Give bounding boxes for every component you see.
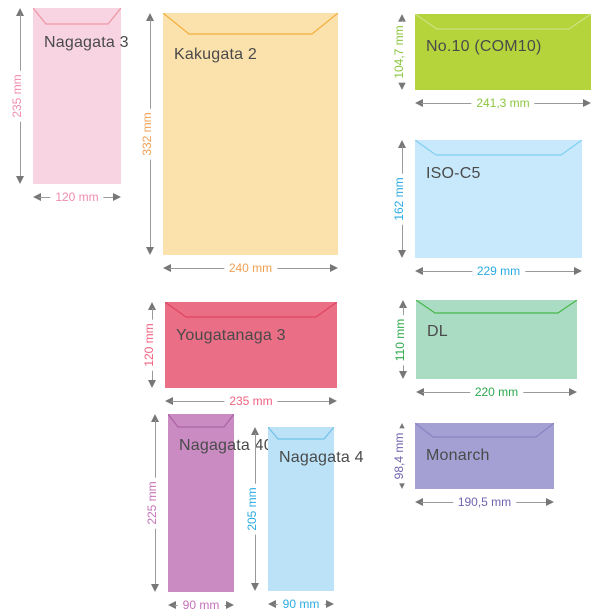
envelope-body: No.10 (COM10) xyxy=(415,14,591,90)
flap-outline xyxy=(168,414,234,427)
envelope-flap-icon xyxy=(168,414,234,429)
height-label: 98,4 mm xyxy=(391,429,407,484)
width-label: 220 mm xyxy=(470,385,523,399)
envelope-flap-icon xyxy=(268,427,334,441)
width-label: 235 mm xyxy=(224,394,277,408)
arrow-right-icon xyxy=(330,264,338,272)
envelope-name: Kakugata 2 xyxy=(174,46,257,64)
envelope-flap-icon xyxy=(163,13,338,36)
envelope-name: Yougatanaga 3 xyxy=(176,327,286,345)
arrow-down-icon xyxy=(399,371,407,379)
height-label: 104,7 mm xyxy=(391,21,407,82)
height-dimension: 120 mm xyxy=(145,302,159,388)
arrow-down-icon xyxy=(148,380,156,388)
width-dimension: 240 mm xyxy=(163,260,338,276)
envelope-name: Nagagata 4 xyxy=(279,449,364,467)
envelope-flap-icon xyxy=(415,140,582,157)
envelope-body: ISO-C5 xyxy=(415,140,582,258)
height-label: 110 mm xyxy=(392,314,408,364)
width-label: 229 mm xyxy=(472,264,525,278)
arrow-down-icon xyxy=(16,176,24,184)
arrow-right-icon xyxy=(226,601,234,609)
arrow-right-icon xyxy=(583,99,591,107)
flap-outline xyxy=(33,8,121,24)
width-dimension: 90 mm xyxy=(168,597,234,613)
height-label: 332 mm xyxy=(139,108,155,159)
width-label: 120 mm xyxy=(50,190,103,204)
arrow-right-icon xyxy=(326,600,334,608)
envelope-name: No.10 (COM10) xyxy=(426,38,542,56)
envelope-flap-icon xyxy=(416,300,577,315)
arrow-right-icon xyxy=(569,388,577,396)
height-dimension: 104,7 mm xyxy=(395,14,409,90)
width-dimension: 120 mm xyxy=(33,189,121,205)
envelope-body: Nagagata 4 xyxy=(268,427,334,591)
width-label: 90 mm xyxy=(178,598,225,612)
flap-outline xyxy=(268,427,334,439)
envelope-body: Yougatanaga 3 xyxy=(165,302,337,388)
envelope-name: ISO-C5 xyxy=(426,165,481,183)
width-label: 190,5 mm xyxy=(453,495,516,509)
envelope-name: Nagagata 3 xyxy=(44,34,129,52)
flap-outline xyxy=(165,302,337,317)
envelope-body: Nagagata 3 xyxy=(33,8,121,184)
height-label: 205 mm xyxy=(244,483,260,534)
envelope-body: Nagagata 40 xyxy=(168,414,234,592)
width-dimension: 229 mm xyxy=(415,263,582,279)
width-label: 90 mm xyxy=(278,597,325,611)
width-dimension: 241,3 mm xyxy=(415,95,591,111)
width-label: 240 mm xyxy=(224,261,277,275)
envelope-flap-icon xyxy=(415,423,554,439)
arrow-down-icon xyxy=(251,583,259,591)
height-dimension: 162 mm xyxy=(395,140,409,258)
height-label: 120 mm xyxy=(141,319,157,370)
flap-outline xyxy=(415,423,554,437)
arrow-down-icon xyxy=(151,584,159,592)
width-label: 241,3 mm xyxy=(471,96,534,110)
height-dimension: 225 mm xyxy=(148,414,162,592)
arrow-right-icon xyxy=(329,397,337,405)
height-label: 162 mm xyxy=(391,173,407,224)
arrow-right-icon xyxy=(113,193,121,201)
width-dimension: 90 mm xyxy=(268,596,334,612)
width-dimension: 190,5 mm xyxy=(415,494,554,510)
flap-outline xyxy=(415,14,591,29)
height-dimension: 110 mm xyxy=(396,300,410,379)
height-label: 235 mm xyxy=(9,70,25,121)
envelope-name: Monarch xyxy=(426,447,490,465)
envelope-flap-icon xyxy=(415,14,591,31)
height-dimension: 205 mm xyxy=(248,427,262,591)
height-dimension: 98,4 mm xyxy=(395,423,409,489)
flap-outline xyxy=(416,300,577,313)
envelope-name: DL xyxy=(427,323,448,341)
arrow-down-icon xyxy=(146,247,154,255)
arrow-down-icon xyxy=(398,82,406,90)
envelope-body: Monarch xyxy=(415,423,554,489)
flap-outline xyxy=(415,140,582,155)
envelope-body: Kakugata 2 xyxy=(163,13,338,255)
envelope-flap-icon xyxy=(33,8,121,26)
height-label: 225 mm xyxy=(144,477,160,528)
arrow-down-icon xyxy=(398,250,406,258)
arrow-right-icon xyxy=(546,498,554,506)
arrow-right-icon xyxy=(574,267,582,275)
width-dimension: 220 mm xyxy=(416,384,577,400)
envelope-body: DL xyxy=(416,300,577,379)
height-dimension: 332 mm xyxy=(143,13,157,255)
flap-outline xyxy=(163,13,338,34)
envelope-size-diagram: Nagagata 3 235 mm 120 mm Kakugata 2 xyxy=(0,0,602,614)
height-dimension: 235 mm xyxy=(13,8,27,184)
width-dimension: 235 mm xyxy=(165,393,337,409)
envelope-flap-icon xyxy=(165,302,337,319)
